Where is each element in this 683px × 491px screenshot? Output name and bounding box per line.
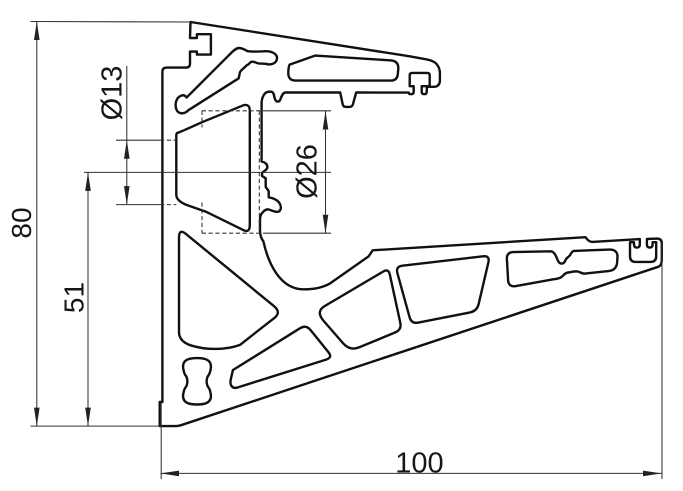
svg-text:100: 100 <box>395 448 443 480</box>
svg-text:Ø26: Ø26 <box>292 144 324 199</box>
svg-text:Ø13: Ø13 <box>97 66 129 121</box>
svg-text:51: 51 <box>59 282 90 313</box>
svg-text:80: 80 <box>6 207 37 238</box>
